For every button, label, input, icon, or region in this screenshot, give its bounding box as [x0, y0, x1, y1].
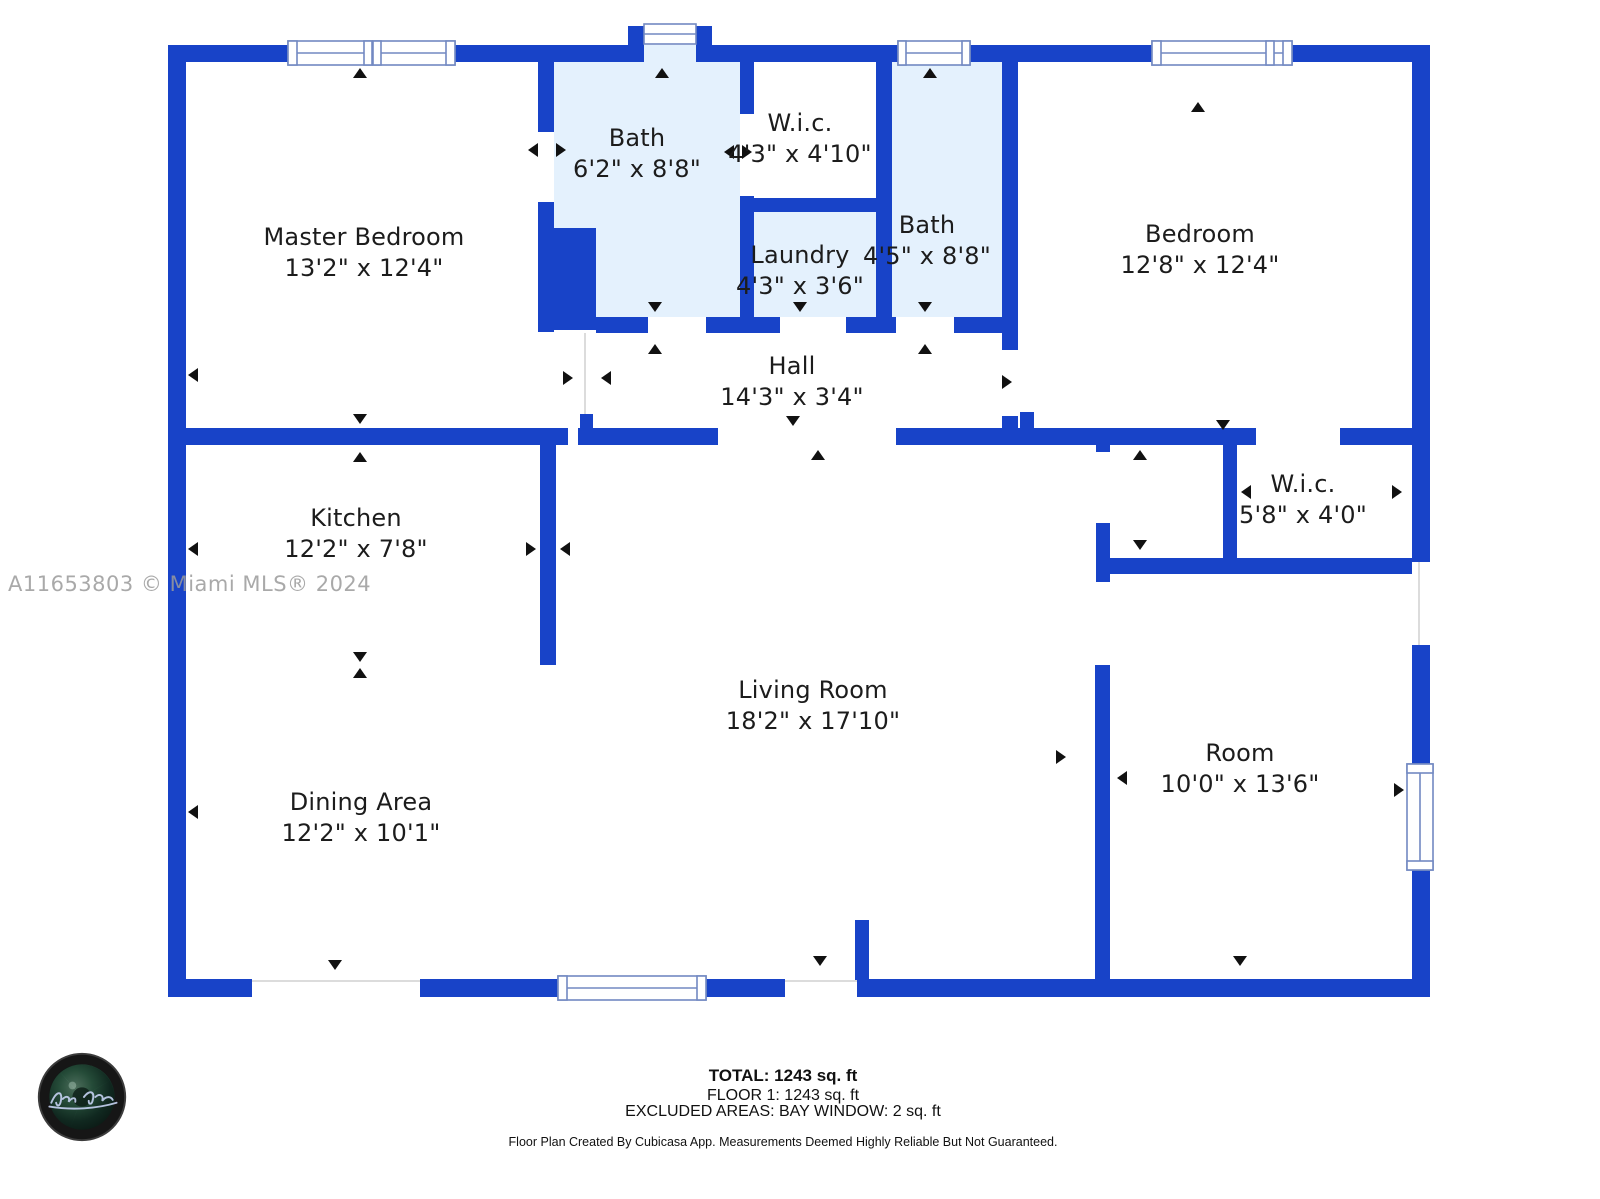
- room-label-kitchen: Kitchen 12'2" x 7'8": [284, 503, 427, 565]
- room-label-bedroom: Bedroom 12'8" x 12'4": [1121, 219, 1280, 281]
- total-area-text: TOTAL: 1243 sq. ft: [0, 1066, 1566, 1086]
- room-label-wic-1: W.i.c. 4'3" x 4'10": [728, 108, 871, 170]
- room-label-hall: Hall 14'3" x 3'4": [720, 351, 863, 413]
- room-label-master-bedroom: Master Bedroom 13'2" x 12'4": [264, 222, 465, 284]
- excluded-area-text: EXCLUDED AREAS: BAY WINDOW: 2 sq. ft: [0, 1103, 1566, 1121]
- window-bay-top: [644, 24, 696, 44]
- room-label-bath-1: Bath 6'2" x 8'8": [573, 123, 701, 185]
- photographer-lens-logo: [34, 1049, 130, 1145]
- window-master-top: [288, 41, 455, 65]
- room-label-wic-2: W.i.c. 5'8" x 4'0": [1239, 469, 1367, 531]
- floor-plan-canvas: Master Bedroom 13'2" x 12'4" Bath 6'2" x…: [0, 0, 1600, 1199]
- bay-window-opening: [644, 45, 696, 62]
- mls-watermark: A11653803 © Miami MLS® 2024: [8, 572, 371, 596]
- room-label-bath-2: Bath 4'5" x 8'8": [863, 210, 991, 272]
- window-bedroom-top: [1152, 41, 1292, 65]
- window-living-bottom: [558, 976, 706, 1000]
- room-label-living-room: Living Room 18'2" x 17'10": [726, 675, 900, 737]
- room-label-dining-area: Dining Area 12'2" x 10'1": [282, 787, 441, 849]
- floor-plan-drawing: [0, 0, 1600, 1199]
- room-label-room: Room 10'0" x 13'6": [1161, 738, 1320, 800]
- window-bath-top: [898, 41, 970, 65]
- room-label-laundry: Laundry 4'3" x 3'6": [736, 240, 864, 302]
- disclaimer-text: Floor Plan Created By Cubicasa App. Meas…: [0, 1135, 1566, 1149]
- window-room-right: [1407, 764, 1433, 870]
